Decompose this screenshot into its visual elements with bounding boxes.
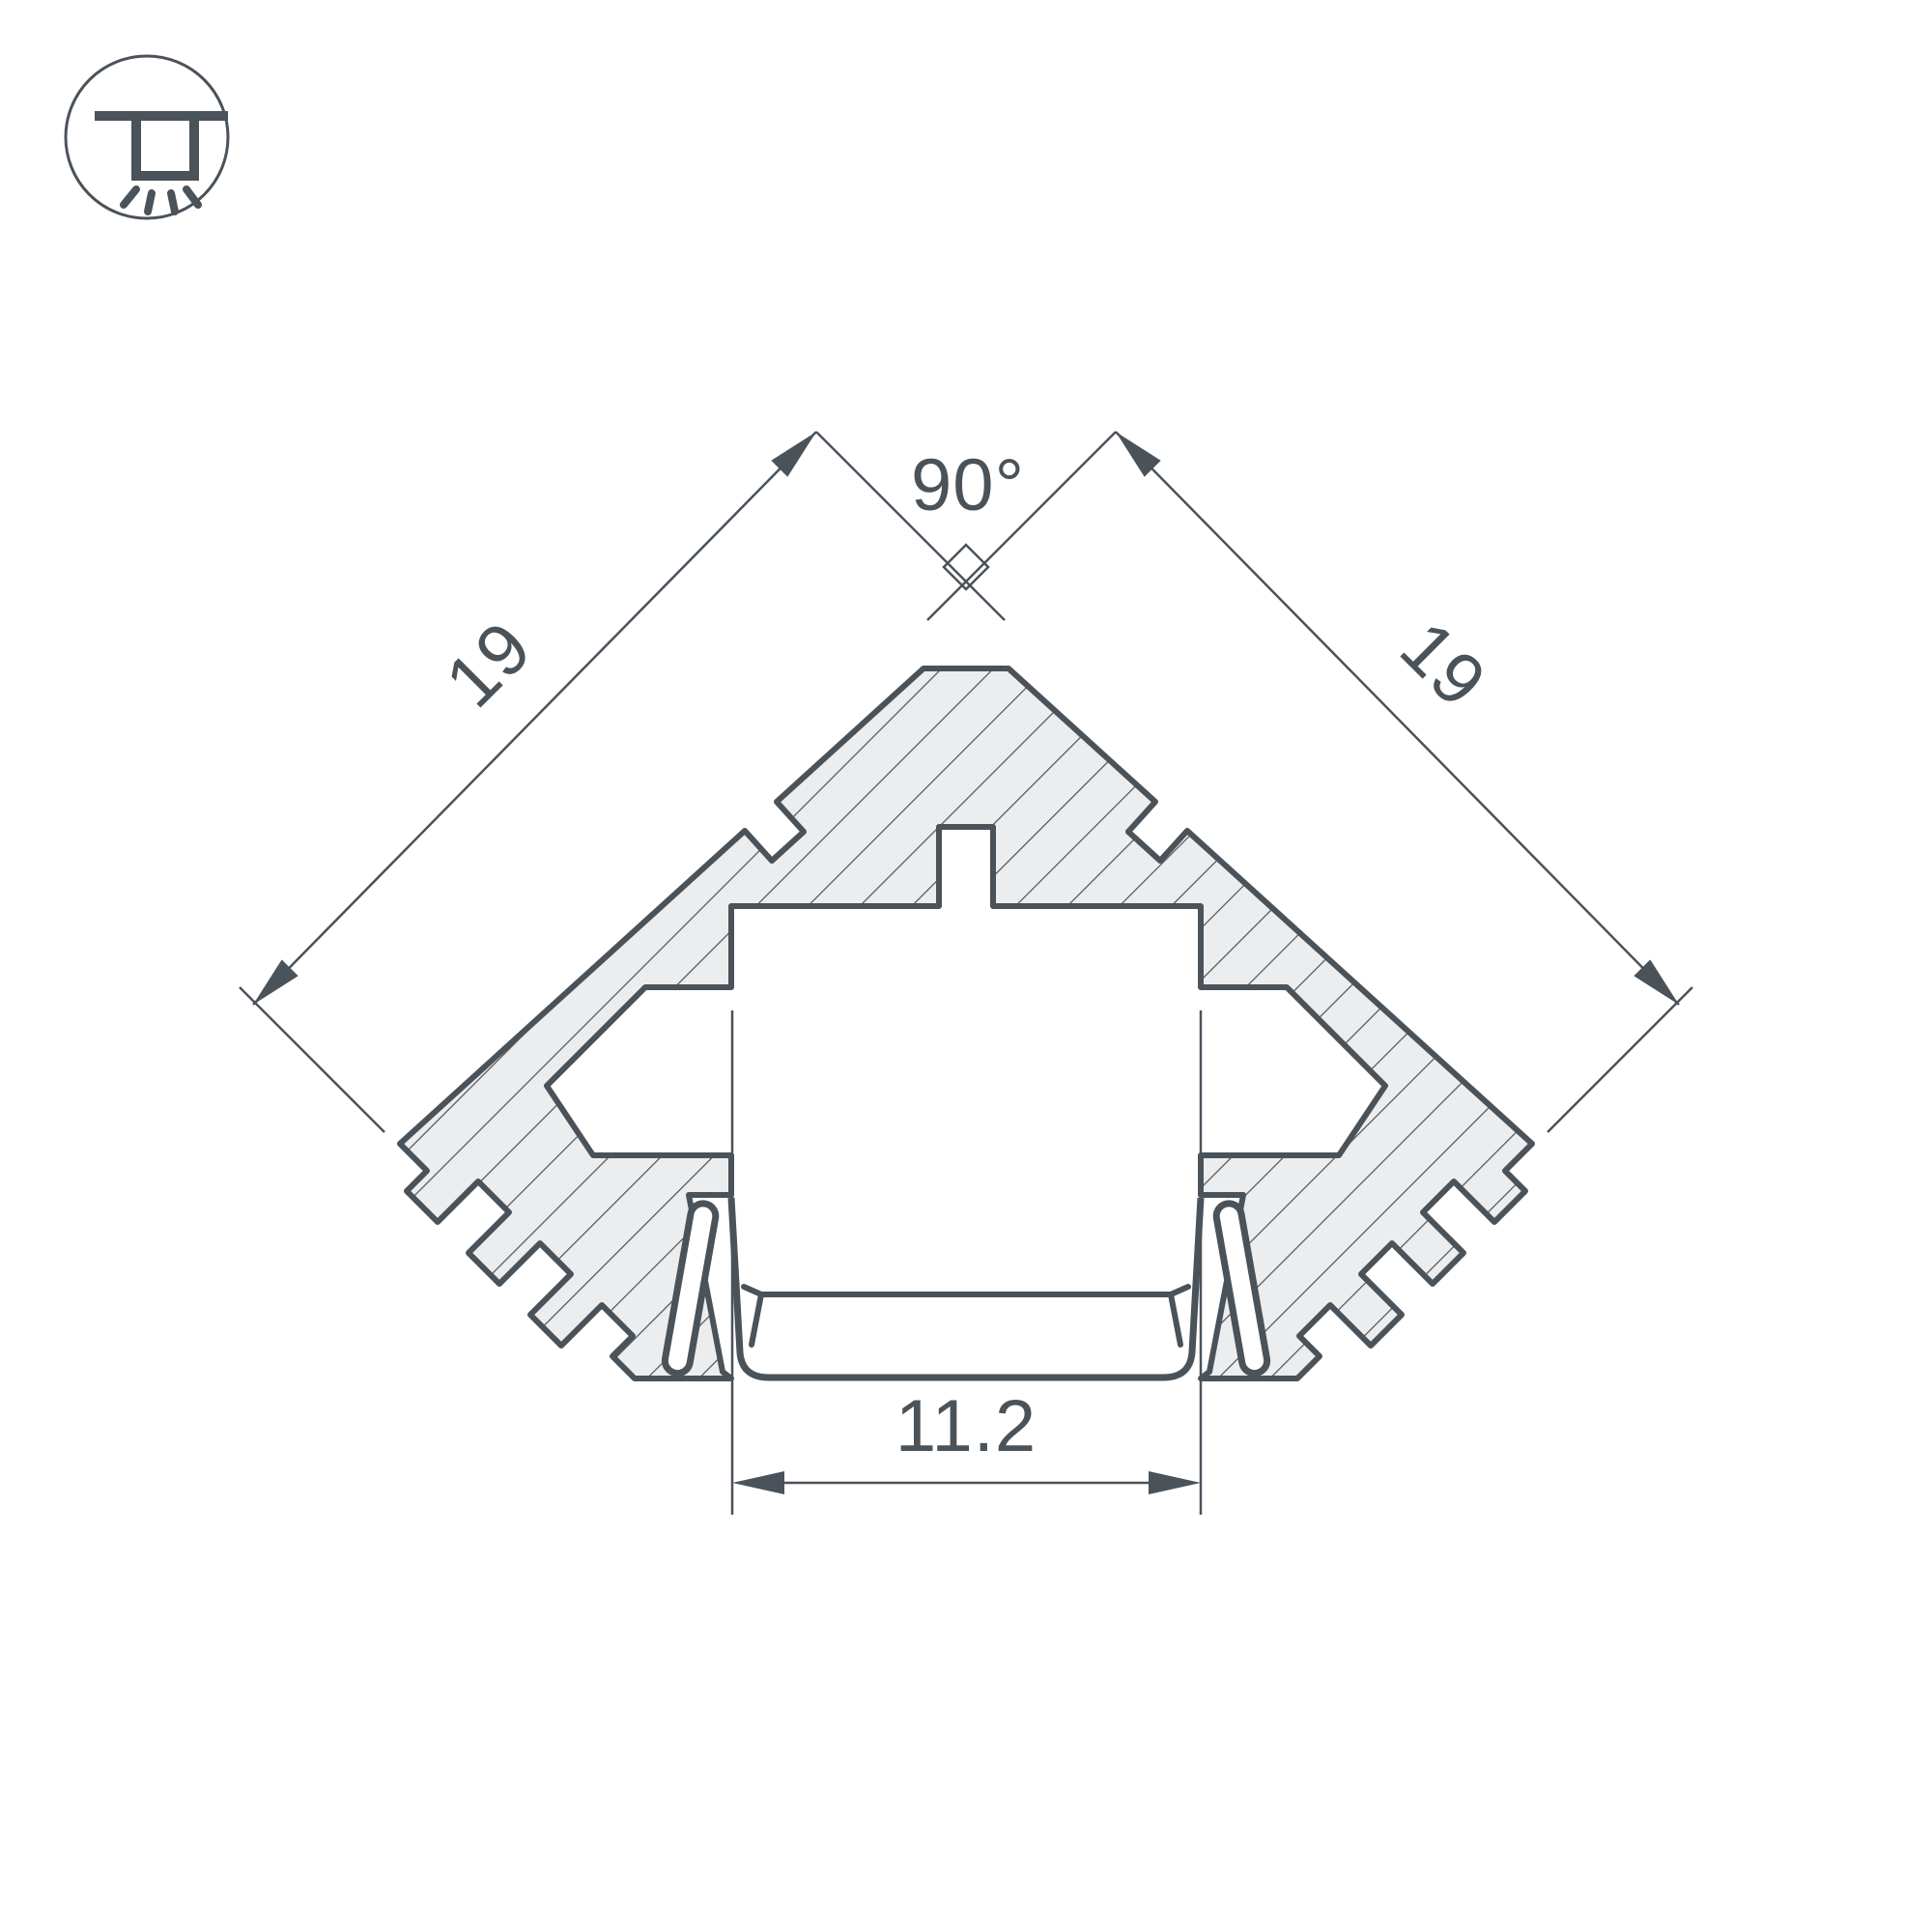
icon-lamp-box — [136, 116, 194, 176]
side-right-extension-line — [1548, 987, 1692, 1132]
drawing-page: 90° 19 19 11.2 — [0, 0, 1932, 1932]
arrowhead — [1149, 1471, 1201, 1494]
led-tray — [731, 1198, 1201, 1378]
dimension-angle-label: 90° — [911, 444, 1025, 526]
dimension-right-label: 19 — [1384, 606, 1501, 723]
dimension-width-label: 11.2 — [895, 1385, 1037, 1467]
dimension-width: 11.2 — [732, 1385, 1201, 1494]
dimension-left-label: 19 — [430, 606, 547, 723]
icon-circle — [66, 56, 228, 218]
ceiling-light-icon — [66, 56, 228, 218]
dimension-angle: 90° — [816, 432, 1116, 620]
arrowhead — [732, 1471, 784, 1494]
side-left-extension-line — [240, 987, 384, 1132]
technical-drawing-canvas: 90° 19 19 11.2 — [0, 0, 1932, 1932]
